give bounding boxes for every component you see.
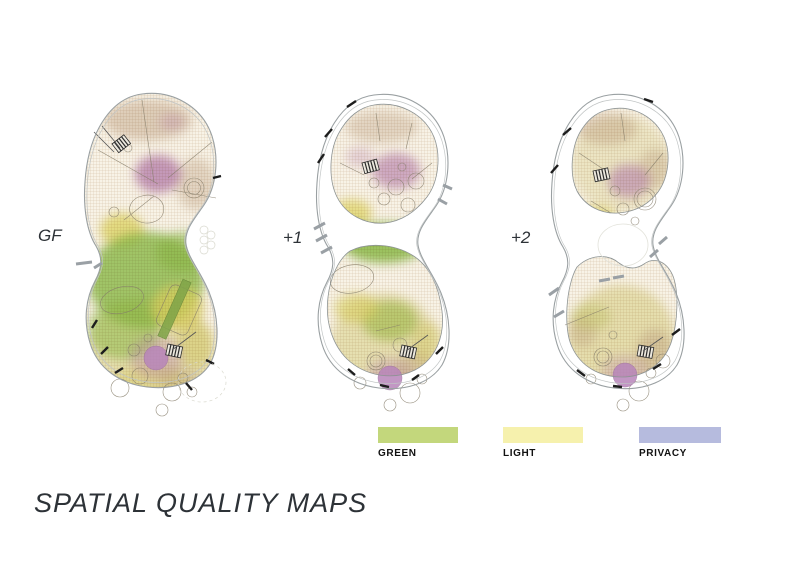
legend-label-light: LIGHT [503,448,583,459]
legend-item-green: GREEN [378,427,458,459]
legend-label-green: GREEN [378,448,458,459]
floor-label-plus1: +1 [283,228,302,248]
privacy-swatch [639,427,721,443]
map-plus1 [314,94,452,411]
light-swatch [503,427,583,443]
spatial-quality-maps-page: GF +1 +2 GREEN LIGHT PRIVACY SPATIAL QUA… [0,0,800,565]
green-swatch [378,427,458,443]
floor-label-plus2: +2 [511,228,530,248]
legend-item-privacy: PRIVACY [639,427,721,459]
map-plus2 [549,94,684,411]
map-gf [76,93,226,416]
floor-label-gf: GF [38,226,62,246]
floorplans-drawing [0,0,800,565]
legend-item-light: LIGHT [503,427,583,459]
plus2-void-outline [598,224,648,266]
page-title: SPATIAL QUALITY MAPS [34,488,367,519]
legend-label-privacy: PRIVACY [639,448,721,459]
gf-privacy-core [144,346,168,370]
